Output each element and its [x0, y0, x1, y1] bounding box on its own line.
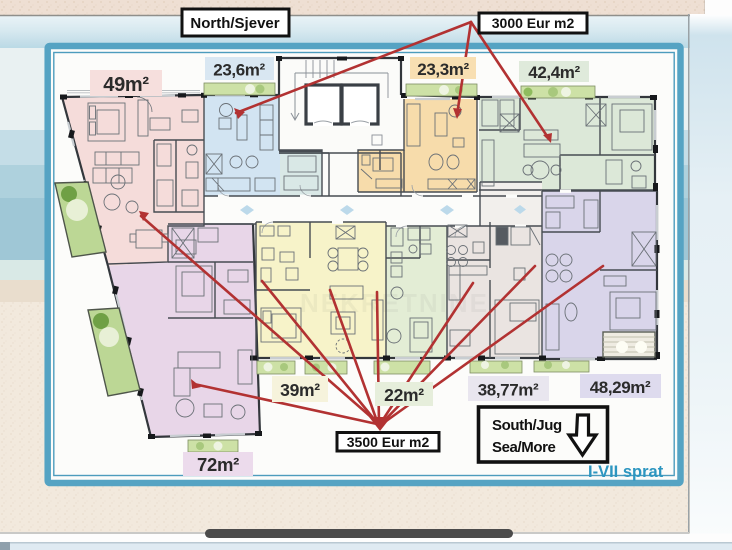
svg-text:38,77m²: 38,77m²	[478, 381, 539, 400]
svg-text:3000 Eur m2: 3000 Eur m2	[492, 15, 575, 31]
svg-text:I-VII sprat: I-VII sprat	[588, 463, 664, 481]
svg-text:North/Sjever: North/Sjever	[190, 15, 279, 32]
svg-text:49m²: 49m²	[103, 74, 149, 96]
svg-text:22m²: 22m²	[384, 385, 424, 405]
svg-text:3500 Eur m2: 3500 Eur m2	[347, 434, 430, 450]
svg-text:23,3m²: 23,3m²	[417, 60, 469, 79]
svg-text:72m²: 72m²	[197, 454, 239, 475]
svg-text:42,4m²: 42,4m²	[528, 63, 580, 82]
svg-text:Sea/More: Sea/More	[492, 439, 556, 456]
svg-text:48,29m²: 48,29m²	[590, 378, 651, 397]
svg-text:39m²: 39m²	[280, 380, 320, 400]
svg-text:South/Jug: South/Jug	[492, 417, 562, 434]
svg-text:23,6m²: 23,6m²	[213, 61, 265, 80]
